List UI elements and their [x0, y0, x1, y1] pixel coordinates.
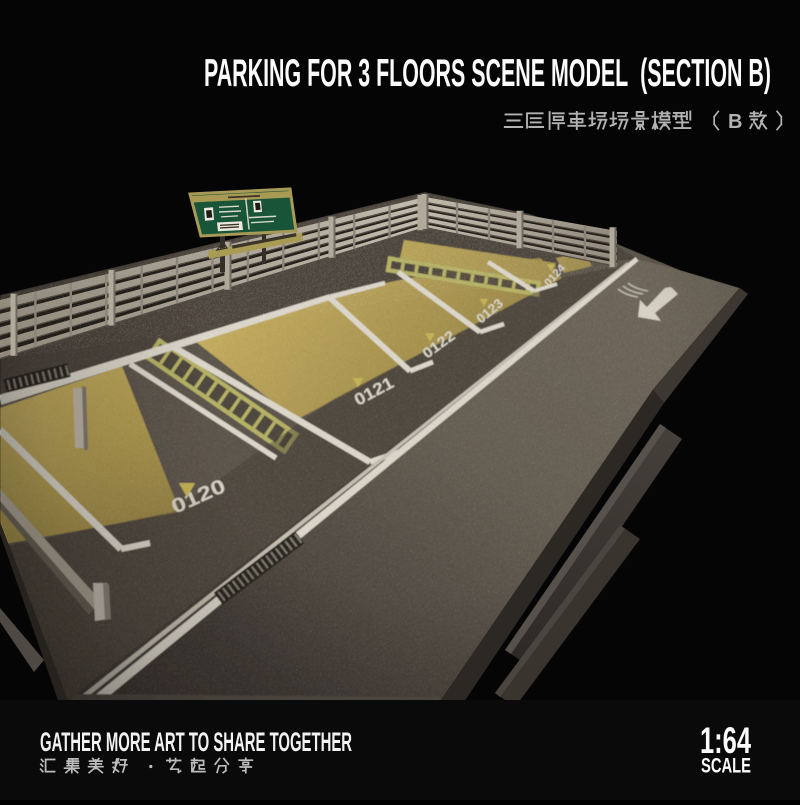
svg-text:GATHER MORE ART TO SHARE TOGET: GATHER MORE ART TO SHARE TOGETHER [40, 727, 352, 757]
svg-text:PARKING FOR 3 FLOORS SCENE MOD: PARKING FOR 3 FLOORS SCENE MODEL (SECTIO… [204, 52, 771, 95]
svg-text:B: B [728, 111, 742, 133]
svg-text:SCALE: SCALE [701, 754, 751, 778]
